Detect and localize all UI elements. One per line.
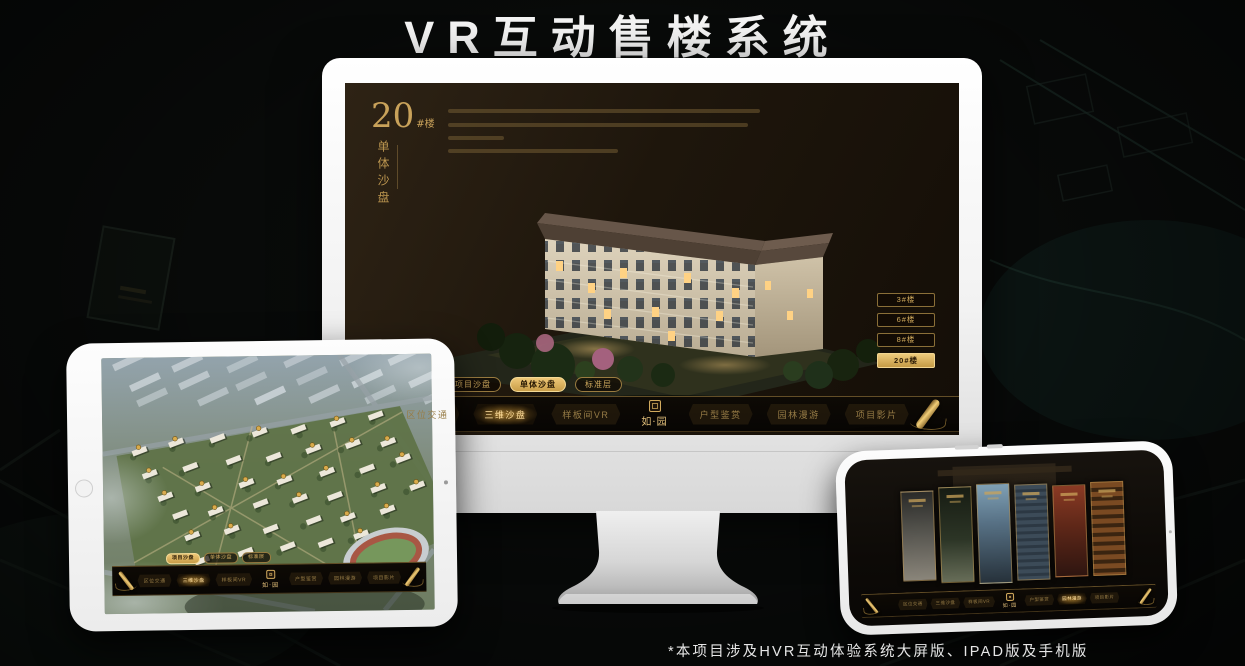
floor-button[interactable]: 3#楼 [877, 293, 935, 307]
stage: VR互动售楼系统 20#楼 单体沙盘 [0, 0, 1245, 666]
menu-item[interactable]: 样板间VR [966, 597, 993, 607]
building-number-suffix: #楼 [416, 119, 434, 130]
floor-button[interactable]: 8#楼 [877, 333, 935, 347]
menu-item[interactable]: 样板间VR [556, 405, 615, 424]
scroll-icon[interactable] [404, 567, 421, 587]
logo-text: 如·园 [262, 579, 279, 588]
power-button[interactable] [987, 444, 1003, 449]
phone-menu-bar: 区位交通三维沙盘样板间VR如·园户型鉴赏园林漫游项目影片 [861, 584, 1157, 618]
logo-emblem-icon [1005, 593, 1013, 601]
subtab[interactable]: 单体沙盘 [510, 377, 566, 392]
camera-icon [1169, 530, 1172, 533]
building-title: 20#楼 [371, 96, 435, 136]
subtab[interactable]: 单体沙盘 [204, 552, 238, 563]
logo-emblem-icon [266, 569, 275, 578]
menu-item[interactable]: 三维沙盘 [180, 574, 208, 585]
monitor-stand [538, 511, 766, 613]
subtab[interactable]: 标准层 [575, 377, 622, 392]
volume-button[interactable] [955, 445, 979, 450]
menu-item[interactable]: 园林漫游 [331, 572, 359, 583]
home-button[interactable] [75, 479, 93, 497]
floor-button[interactable]: 6#楼 [877, 313, 935, 327]
phone-device: 区位交通三维沙盘样板间VR如·园户型鉴赏园林漫游项目影片 [835, 440, 1178, 636]
menu-item[interactable]: 园林漫游 [1059, 594, 1084, 604]
building-number: 20 [371, 96, 414, 136]
monitor-subtabs: 项目沙盘单体沙盘标准层 [445, 377, 622, 392]
gallery-panel-6[interactable] [1090, 481, 1126, 576]
menu-item[interactable]: 样板间VR [219, 574, 250, 585]
ruyuan-logo: 如·园 [641, 400, 667, 428]
scroll-icon[interactable] [1139, 588, 1153, 604]
menu-item[interactable]: 户型鉴赏 [694, 405, 748, 424]
building-render-3d [425, 161, 885, 411]
menu-item[interactable]: 三维沙盘 [478, 405, 532, 424]
menu-item[interactable]: 户型鉴赏 [1027, 595, 1052, 605]
logo-emblem-icon [649, 400, 661, 412]
scroll-icon[interactable] [913, 399, 943, 429]
tablet-menu-bar: 区位交通三维沙盘样板间VR如·园户型鉴赏园林漫游项目影片 [112, 562, 426, 596]
floor-button[interactable]: 20#楼 [877, 353, 935, 368]
tablet-device: 项目沙盘单体沙盘标准层 区位交通三维沙盘样板间VR如·园户型鉴赏园林漫游项目影片 [66, 338, 458, 631]
gallery-panel-2[interactable] [938, 486, 974, 583]
scroll-tail [1138, 596, 1155, 605]
phone-screen: 区位交通三维沙盘样板间VR如·园户型鉴赏园林漫游项目影片 [844, 449, 1169, 626]
footnote: *本项目涉及HVR互动体验系统大屏版、IPAD版及手机版 [668, 640, 1089, 661]
scroll-tail [402, 577, 424, 589]
camera-icon [444, 480, 448, 484]
logo-text: 如·园 [641, 413, 667, 428]
floor-button-group: 3#楼6#楼8#楼20#楼 [877, 293, 935, 368]
menu-item[interactable]: 户型鉴赏 [292, 573, 320, 584]
menu-item[interactable]: 园林漫游 [772, 405, 826, 424]
tablet-screen: 项目沙盘单体沙盘标准层 区位交通三维沙盘样板间VR如·园户型鉴赏园林漫游项目影片 [101, 354, 435, 615]
menu-item[interactable]: 区位交通 [900, 599, 925, 609]
subtab[interactable]: 标准层 [242, 552, 271, 563]
ruyuan-logo: 如·园 [1002, 593, 1017, 609]
menu-item[interactable]: 项目影片 [1092, 593, 1117, 603]
gallery-panel-3[interactable] [976, 483, 1012, 584]
scroll-tail [863, 605, 880, 615]
scroll-icon[interactable] [117, 571, 134, 591]
gallery-panel-1[interactable] [900, 491, 936, 582]
vertical-deco-line [397, 145, 398, 189]
scroll-icon[interactable] [865, 598, 879, 614]
page-title: VR互动售楼系统 [0, 1, 1245, 66]
subtab[interactable]: 项目沙盘 [166, 553, 200, 564]
menu-item[interactable]: 区位交通 [141, 575, 169, 586]
scroll-tail [909, 413, 947, 432]
menu-item[interactable]: 项目影片 [370, 572, 398, 583]
scroll-tail [114, 581, 136, 593]
tablet-subtabs: 项目沙盘单体沙盘标准层 [166, 552, 271, 564]
menu-item[interactable]: 三维沙盘 [933, 598, 958, 608]
ruyuan-logo: 如·园 [262, 569, 279, 588]
gallery-panel-4[interactable] [1014, 484, 1050, 581]
menu-item[interactable]: 项目影片 [850, 405, 904, 424]
logo-text: 如·园 [1003, 602, 1018, 610]
building-subtitle-vertical: 单体沙盘 [375, 140, 392, 208]
gallery-panel-5[interactable] [1052, 484, 1088, 577]
